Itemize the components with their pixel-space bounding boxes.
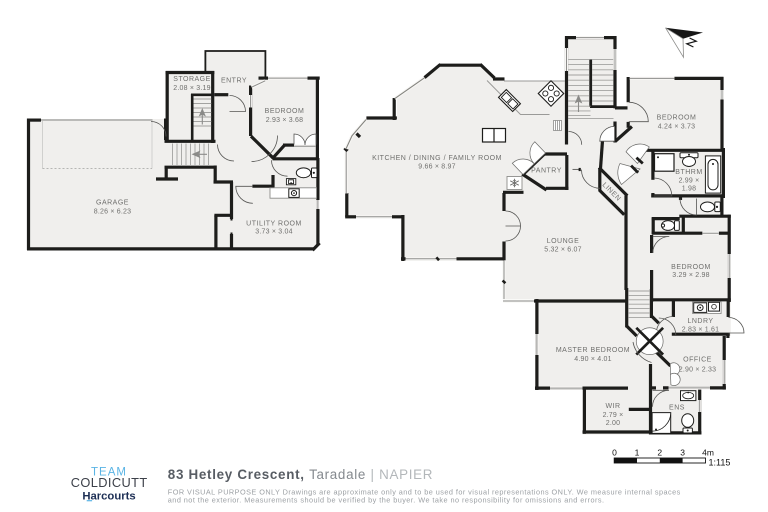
svg-text:and not the exterior. Measurem: and not the exterior. Measurements shoul… [168, 496, 605, 505]
svg-text:9.66 × 8.97: 9.66 × 8.97 [418, 164, 455, 171]
svg-text:3.29 × 2.98: 3.29 × 2.98 [672, 272, 709, 279]
svg-text:1: 1 [635, 448, 640, 458]
svg-text:4m: 4m [702, 448, 714, 458]
svg-text:COLDICUTT: COLDICUTT [71, 475, 148, 490]
svg-text:1.98: 1.98 [682, 186, 696, 193]
svg-text:2.00: 2.00 [606, 420, 620, 427]
svg-text:3.73 × 3.04: 3.73 × 3.04 [255, 229, 292, 236]
svg-text:2.83 × 1.61: 2.83 × 1.61 [682, 327, 719, 334]
svg-text:2.99 ×: 2.99 × [679, 178, 700, 185]
svg-text:0: 0 [612, 448, 617, 458]
svg-text:5.32 × 6.07: 5.32 × 6.07 [544, 247, 581, 254]
svg-text:LNDRY: LNDRY [687, 318, 713, 325]
svg-text:PANTRY: PANTRY [531, 168, 562, 175]
svg-text:BEDROOM: BEDROOM [265, 108, 305, 115]
svg-text:WIR: WIR [605, 403, 620, 410]
svg-text:STORAGE: STORAGE [173, 76, 211, 83]
svg-text:4.24 × 3.73: 4.24 × 3.73 [658, 124, 695, 131]
svg-text:BEDROOM: BEDROOM [657, 115, 697, 122]
svg-text:2.93 × 3.68: 2.93 × 3.68 [266, 117, 303, 124]
svg-text:BTHRM: BTHRM [675, 169, 702, 176]
svg-text:ENTRY: ENTRY [221, 78, 247, 85]
svg-text:GARAGE: GARAGE [96, 200, 129, 207]
svg-text:3: 3 [680, 448, 685, 458]
svg-text:1:115: 1:115 [709, 458, 731, 468]
svg-text:2.08 × 3.19: 2.08 × 3.19 [173, 85, 210, 92]
svg-text:UTILITY ROOM: UTILITY ROOM [246, 221, 302, 228]
svg-text:OFFICE: OFFICE [683, 357, 712, 364]
svg-text:BEDROOM: BEDROOM [671, 264, 711, 271]
svg-text:2.79 ×: 2.79 × [603, 412, 624, 419]
svg-text:KITCHEN / DINING / FAMILY ROOM: KITCHEN / DINING / FAMILY ROOM [372, 155, 502, 162]
svg-text:4.90 × 4.01: 4.90 × 4.01 [574, 356, 611, 363]
svg-text:83 Hetley Crescent, Taradale |: 83 Hetley Crescent, Taradale | NAPIER [168, 467, 433, 482]
svg-text:2.90 × 2.33: 2.90 × 2.33 [679, 367, 716, 374]
svg-text:2: 2 [657, 448, 662, 458]
svg-text:MASTER BEDROOM: MASTER BEDROOM [556, 347, 630, 354]
svg-text:LOUNGE: LOUNGE [547, 238, 580, 245]
svg-text:8.26 × 6.23: 8.26 × 6.23 [94, 209, 131, 216]
svg-text:ENS: ENS [669, 405, 685, 412]
